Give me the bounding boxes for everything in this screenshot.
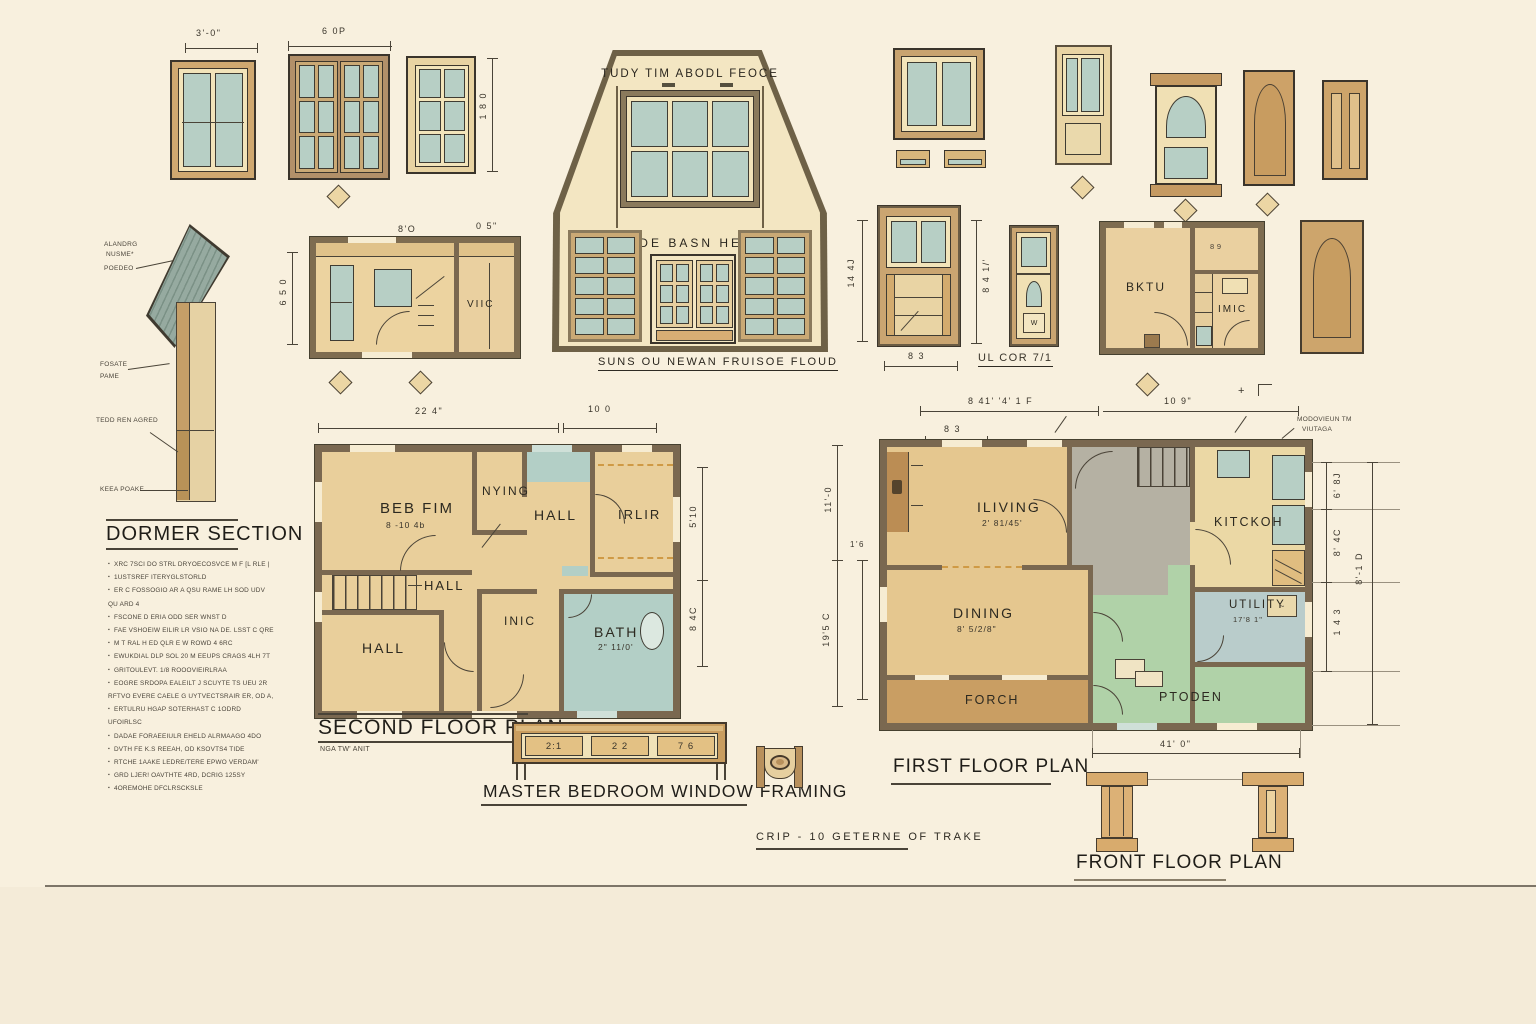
note-line: FAE VSHOEIW EILIR LR VSIO NA DE. LSST C … (108, 624, 276, 637)
panel-label: 7 6 (678, 741, 694, 752)
dim-line (288, 46, 392, 47)
lower-framing (886, 274, 951, 336)
glass-pane (660, 264, 673, 282)
window-gap (350, 445, 395, 452)
glass-pane (1021, 237, 1047, 267)
window-gap (315, 592, 322, 622)
dim-tick (857, 220, 868, 221)
glass-pane (745, 318, 774, 335)
room-label: HALL (424, 578, 465, 593)
note-line: GRITOULEVT. 1/8 ROOOVIEIRLRAA (108, 664, 276, 677)
dim-label: 1 8 0 (478, 92, 488, 120)
note-line: ER C FOSSOGIO AR A QSU RAME LH SOD UDV Q… (108, 584, 276, 610)
window-gap (1164, 222, 1182, 228)
door-panel (1331, 93, 1342, 169)
callout-leader (140, 490, 188, 491)
glass-pane (419, 134, 441, 163)
glass-pane (1066, 58, 1078, 112)
door-face: W (1016, 232, 1051, 339)
vent-glass (948, 159, 982, 165)
window-mullion (331, 302, 352, 303)
diamond-marker (1255, 192, 1279, 216)
partition-wall (439, 610, 444, 711)
room-label: NYING (482, 484, 530, 498)
callout-label: TEDD REN AGRED (96, 417, 158, 424)
dim-tick (563, 423, 564, 433)
dim-tick (920, 406, 921, 416)
glass-pane (575, 277, 604, 294)
dim-tick (884, 361, 885, 371)
glass-pane (716, 264, 729, 282)
partition-wall (472, 530, 527, 535)
name-plate: W (1023, 313, 1045, 333)
post-shaft (1258, 786, 1288, 838)
dim-label: 0 5" (476, 221, 498, 231)
window-gap (315, 482, 322, 522)
partition-wall (322, 610, 444, 615)
door-lites (415, 65, 469, 167)
glass-pane (575, 298, 604, 315)
window-framing-elevation (878, 206, 960, 346)
jamb-stud (942, 275, 950, 335)
pantry-shelf (1272, 550, 1305, 586)
dim-tick (832, 445, 843, 446)
glass-pane (607, 277, 636, 294)
dim-label: 1 4 3 (1332, 608, 1342, 636)
dim-label: 1'6 (850, 540, 865, 549)
glass-pane (363, 101, 379, 134)
door-leaf-right (340, 61, 383, 173)
note-leader (1282, 428, 1295, 439)
title-overline (318, 713, 528, 715)
glass-pane (745, 277, 774, 294)
hearth-tick (911, 465, 923, 466)
glass-pane (712, 101, 749, 147)
dim-line-vertical (1326, 462, 1327, 671)
dormer-section-title: DORMER SECTION (106, 523, 303, 546)
post-base (1096, 838, 1138, 852)
window-gap (622, 445, 652, 452)
dim-label: 10 0 (588, 404, 612, 414)
second-floor-subtitle: NGA TW' ANIT (320, 746, 370, 753)
room-size: 17'8 1" (1233, 615, 1263, 624)
dormer-elevation: TUDY TIM ABODL FEOCE BUDE BASN HETE (552, 50, 828, 352)
room-size: 2' 81/45' (982, 518, 1023, 528)
diamond-marker (1070, 175, 1094, 199)
door-kick-rail (656, 330, 733, 341)
dim-tick (1321, 671, 1332, 672)
dim-tick (1321, 462, 1332, 463)
door-leaf-line (482, 524, 501, 548)
dim-label: 22 4" (415, 406, 443, 416)
glass-pane (419, 101, 441, 130)
partition-wall (559, 589, 564, 711)
note-line: 4OREMOHE DFCLRSCKSLE (108, 782, 276, 795)
post-cap (1086, 772, 1148, 786)
arched-pane (1166, 96, 1206, 138)
bathtub (640, 612, 664, 650)
partition-wall (472, 452, 477, 535)
glass-pane (777, 277, 806, 294)
glass-pane (672, 151, 709, 197)
dim-label: 5'10 (688, 505, 698, 528)
sash-divider (182, 122, 244, 123)
vent-glass (900, 159, 926, 165)
blue-zone (527, 452, 590, 482)
first-floor-plan: ~ ILIVING 2' 81/45' KITCKOH DINING 8' 5/… (880, 440, 1312, 730)
note-line: 1USTSREF ITERYGLSTORLD (108, 571, 276, 584)
dim-tick (1299, 748, 1300, 758)
callout-leader (136, 260, 173, 269)
shaft-line (1109, 787, 1110, 836)
partition-wall (477, 589, 482, 711)
glass-pane (299, 101, 315, 134)
shaft-panel (1266, 790, 1276, 833)
dim-line-vertical (837, 445, 838, 707)
glass-pane (716, 285, 729, 303)
dim-tick (832, 706, 843, 707)
dim-tick (1367, 462, 1378, 463)
dim-tick (1367, 724, 1378, 725)
fixture-outline (1135, 671, 1163, 687)
dim-line-vertical (862, 220, 863, 342)
arched-door-large (1300, 220, 1364, 354)
framing-leg (516, 764, 518, 780)
room-label: BATH (594, 624, 638, 640)
step-mark (418, 305, 434, 306)
closet-shelves (1195, 274, 1213, 348)
dark-fixture (1144, 334, 1160, 348)
ul-door-caption: UL COR 7/1 (978, 352, 1053, 367)
crip-underline (756, 848, 908, 850)
diamond-marker (1173, 198, 1197, 222)
jamb-stud (887, 275, 895, 335)
room-label: FORCH (965, 693, 1019, 707)
window-sashes (178, 68, 248, 172)
vent-window (896, 150, 930, 168)
double-french-door (288, 54, 390, 180)
dim-line (920, 411, 1098, 412)
dim-tick (697, 467, 708, 468)
blueprint-sheet: 3'-0" 6 0P 1 8 0 TUDY TIM ABODL FEOCE BU… (0, 0, 1536, 1024)
glass-pane (575, 318, 604, 335)
partition-wall (1067, 447, 1072, 567)
room-size: 8 -10 4b (386, 520, 425, 530)
dim-tick (971, 343, 982, 344)
glass-pane (183, 73, 211, 167)
front-floor-title: FRONT FLOOR PLAN (1076, 852, 1283, 874)
window-gap (1305, 602, 1312, 637)
label-leader (408, 585, 422, 586)
diamond-marker (408, 370, 432, 394)
wall-post-line (616, 86, 618, 228)
dim-tick (390, 41, 391, 51)
second-floor-plan: BEB FIM 8 -10 4b NYING HALL IRLIR HALL H… (315, 445, 680, 718)
dashed-line (598, 557, 673, 559)
header-strip (516, 726, 723, 731)
dim-tick (257, 43, 258, 53)
gable-tick (720, 83, 733, 87)
upper-glass (886, 216, 951, 268)
dim-tick (971, 220, 982, 221)
glass-pane (676, 306, 689, 324)
dim-line-vertical (1372, 462, 1373, 725)
window-gap (1027, 440, 1062, 447)
footer-rule (45, 885, 1536, 887)
dim-label: 8 4C (688, 606, 698, 631)
main-window (620, 90, 760, 208)
dim-label: 10 9" (1164, 396, 1192, 406)
glass-pane (444, 69, 466, 98)
dim-tick (487, 58, 498, 59)
glass-pane (631, 151, 668, 197)
glass-pane (777, 298, 806, 315)
room-label: DINING (953, 605, 1014, 621)
wall-post-line (762, 86, 764, 228)
dim-tick (185, 43, 186, 53)
window-head-cap (1150, 73, 1222, 86)
room-label: VIIC (467, 299, 494, 310)
glass-pane (607, 318, 636, 335)
arched-lite (1026, 281, 1042, 307)
glass-pane (631, 101, 668, 147)
dim-line (563, 428, 657, 429)
rail-line (895, 297, 942, 298)
plan-note: VIUTAGA (1302, 426, 1332, 433)
leader-curve (1055, 416, 1067, 433)
glass-pane (575, 237, 604, 254)
post-cap (1242, 772, 1304, 786)
callout-label: ALANDRG (104, 241, 138, 248)
glass-pane (363, 136, 379, 169)
blue-zone-small (562, 566, 588, 576)
plus-mark: + (1238, 385, 1246, 397)
window-plan (330, 265, 354, 341)
framing-leg (716, 764, 718, 780)
glass-pane (607, 237, 636, 254)
panel-label: 2:1 (546, 741, 562, 752)
title-underline (481, 804, 747, 806)
room-label: IMIC (1218, 304, 1247, 315)
lower-pane (1164, 147, 1208, 179)
callout-label: NUSME* (106, 251, 134, 258)
dim-label: 3'-0" (196, 28, 221, 38)
note-line: EWUKDIAL DLP SOL 20 M EEUPS CRAGS 4LH 7T (108, 650, 276, 663)
callout-label: PAME (100, 373, 119, 380)
dashed-line (598, 464, 673, 466)
glass-pane (907, 62, 937, 126)
glass-pane (777, 318, 806, 335)
half-glazed-door (1055, 45, 1112, 165)
framing-panel: 2:1 (525, 736, 583, 756)
glass-pane (1081, 58, 1100, 112)
step-mark (418, 325, 434, 326)
window-sill-cap (1150, 184, 1222, 197)
note-line: M T RAL H ED QLR E W ROWD 4 6RC (108, 637, 276, 650)
callout-leader (128, 363, 170, 370)
porch-window-gap (1002, 675, 1047, 680)
callout-leader (150, 432, 179, 452)
dim-label: 6 0P (322, 26, 347, 36)
glass-pane (676, 285, 689, 303)
window-gap (1305, 472, 1312, 507)
gray-hall-tongue (1092, 565, 1168, 595)
door-swing (490, 674, 524, 708)
door-swing (376, 311, 410, 345)
glass-pane (215, 73, 243, 167)
post-shaft (1101, 786, 1133, 838)
room-size: 2" 11/0' (598, 642, 634, 652)
glass-pane (444, 134, 466, 163)
arched-panel-door (1243, 70, 1295, 186)
plate-line (177, 430, 214, 431)
shelf-line (1195, 312, 1212, 313)
window-gap (348, 237, 396, 243)
gable-text: TUDY TIM ABODL FEOCE (552, 68, 828, 80)
glass-pane (607, 257, 636, 274)
dim-label: 14 4J (846, 258, 856, 288)
fireplace (887, 452, 909, 532)
glass-pane (777, 237, 806, 254)
window-panes (901, 56, 977, 132)
first-floor-title: FIRST FLOOR PLAN (893, 756, 1089, 778)
panel-label: 2 2 (612, 741, 628, 752)
dim-label: 6' 8J (1332, 472, 1342, 498)
brace-line (901, 311, 919, 331)
glass-pane (607, 298, 636, 315)
dim-label: 41' 0" (1160, 739, 1191, 749)
room-label: HALL (362, 640, 405, 656)
title-underline (318, 741, 528, 743)
glass-pane (745, 237, 774, 254)
master-framing-detail: 2:1 2 2 7 6 (512, 722, 727, 764)
pulley-hub (776, 759, 784, 765)
post-base (1252, 838, 1294, 852)
partition-wall (1195, 662, 1305, 667)
glass-pane (344, 65, 360, 98)
arched-window (1155, 85, 1217, 185)
dim-line (1103, 411, 1298, 412)
arch-panel (1313, 238, 1351, 338)
hearth-tick (911, 505, 923, 506)
glass-pane (745, 298, 774, 315)
glass-pane (444, 101, 466, 130)
bktu-plan: 8 9 BKTU IMIC (1100, 222, 1264, 354)
double-pane-window (893, 48, 985, 140)
callout-label: POEDEO (104, 265, 134, 272)
dim-tick (318, 423, 319, 433)
window-gap (673, 497, 680, 542)
stairs (332, 575, 417, 610)
glass-pane (299, 65, 315, 98)
note-line: ERTULRU HGAP SOTERHAST C 1ODRD UFOIRLSC (108, 703, 276, 729)
glass-pane (660, 285, 673, 303)
note-line: DVTH FE K.S REEAH, OD KSOVTS4 TIDE (108, 743, 276, 756)
room-label: PTODEN (1159, 690, 1223, 704)
partition-wall (887, 565, 942, 570)
closet-room: VIIC (459, 257, 514, 352)
corner-tick (1258, 384, 1272, 385)
corner-tick (1258, 384, 1259, 396)
room-label: BEB FIM (380, 500, 454, 517)
door-panel (1349, 93, 1360, 169)
dim-label: 8 9 (1210, 242, 1221, 251)
glass-pane (344, 101, 360, 134)
arch-panel (1254, 84, 1286, 176)
glass-pane (419, 69, 441, 98)
partition-wall (477, 589, 537, 594)
glass-pane (700, 306, 713, 324)
porch-window-gap (915, 675, 949, 680)
callout-label: FOSATE (100, 361, 127, 368)
partition-wall (1190, 587, 1305, 592)
glass-pane (676, 264, 689, 282)
shelf-line (1195, 292, 1212, 293)
dim-tick (697, 666, 708, 667)
dim-tick (558, 423, 559, 433)
bracket-detail (756, 744, 804, 792)
dim-tick (832, 560, 843, 561)
dim-tick (697, 580, 708, 581)
window-gap (1124, 222, 1154, 228)
window-gap (1117, 723, 1157, 730)
glass-pane (575, 257, 604, 274)
shaft-line (1123, 787, 1124, 836)
door-leaf-left (295, 61, 338, 173)
diamond-marker (1135, 372, 1159, 396)
dim-tick (857, 699, 868, 700)
entry-double-door (650, 254, 736, 344)
glass-pane (700, 285, 713, 303)
dim-tick (1321, 582, 1332, 583)
glass-pane (745, 257, 774, 274)
elevation-caption: SUNS OU NEWAN FRUISOE FLOUD (598, 356, 838, 371)
dormer-title-overline (106, 519, 238, 521)
partition-wall (1190, 447, 1195, 522)
diamond-marker (328, 370, 352, 394)
dim-label: 19'5 C (821, 612, 831, 647)
glass-pane (700, 264, 713, 282)
note-line: XRC 7SCI DO STRL DRYOECOSVCE M F [L RLE … (108, 558, 276, 571)
glass-pane (344, 136, 360, 169)
rail-line (895, 315, 942, 316)
dim-line-vertical (862, 560, 863, 700)
framing-panel: 2 2 (591, 736, 649, 756)
partition-wall (1022, 565, 1088, 570)
title-underline (1074, 879, 1226, 881)
room-label: HALL (534, 507, 577, 523)
dim-label: 11'-0 (823, 486, 833, 513)
window-gap (880, 587, 887, 622)
entry-leaf (656, 260, 693, 328)
partition-wall (595, 572, 673, 577)
note-line: GRD LJER! OAVTHTE 4RD, DCRIG 125SY (108, 769, 276, 782)
top-corridor (316, 243, 514, 257)
window-gap (942, 440, 982, 447)
dim-line-vertical (292, 252, 293, 345)
stair-direction-line (416, 276, 445, 299)
dim-tick (1298, 406, 1299, 416)
note-line: FSCONE D ERIA ODD SER WNST D (108, 611, 276, 624)
kitchen-counter-blue (1272, 455, 1305, 500)
glass-pane (716, 306, 729, 324)
callout-label: KEEA POAKE (100, 486, 144, 493)
vent-window (944, 150, 986, 168)
dim-label: 8 4 1/' (981, 258, 991, 293)
room-label: KITCKOH (1214, 515, 1284, 529)
kitchen-counter-blue (1217, 450, 1250, 478)
dim-label: 8'-1 D (1354, 552, 1364, 585)
